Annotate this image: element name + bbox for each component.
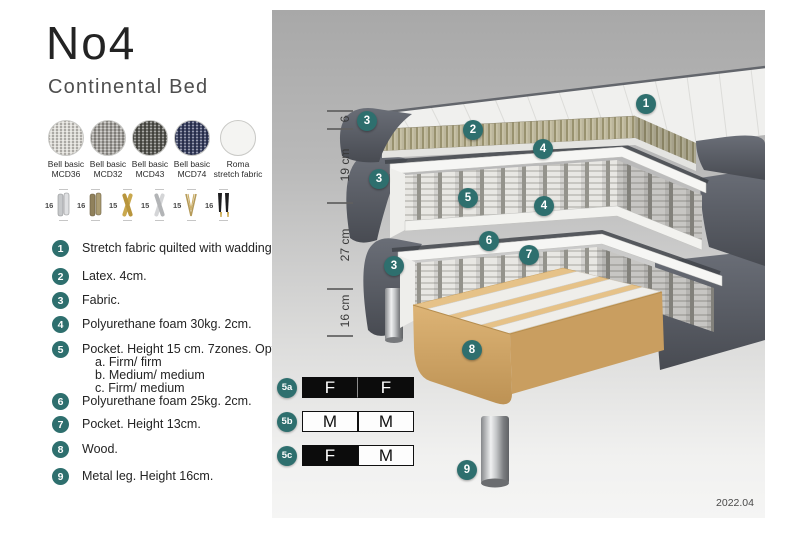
legend-number-badge: 3 bbox=[52, 292, 69, 309]
callout-marker: 5 bbox=[458, 188, 478, 208]
legend-text: Polyurethane foam 30kg. 2cm. bbox=[82, 316, 252, 332]
legend-text: Pocket. Height 13cm. bbox=[82, 416, 201, 432]
callout-marker: 6 bbox=[479, 231, 499, 251]
legend-item: 1 Stretch fabric quilted with wadding. bbox=[52, 240, 275, 257]
firmness-row-5c: 5c F M bbox=[277, 445, 414, 466]
callout-marker: 3 bbox=[357, 111, 377, 131]
middle-frame-post bbox=[390, 168, 405, 238]
version-date: 2022.04 bbox=[716, 497, 754, 509]
legend-text: Stretch fabric quilted with wadding. bbox=[82, 240, 275, 256]
firmness-cell: F bbox=[302, 377, 358, 398]
middle-fabric-side-right bbox=[700, 168, 765, 266]
callout-marker: 3 bbox=[369, 169, 389, 189]
legend-number-badge: 6 bbox=[52, 393, 69, 410]
bed-cutaway-diagram: 6 19 cm 27 cm 16 cm 1 3 2 4 3 5 4 6 7 3 … bbox=[272, 10, 765, 518]
callout-marker: 7 bbox=[519, 245, 539, 265]
firmness-cell: M bbox=[358, 445, 414, 466]
firmness-box: F M bbox=[302, 445, 414, 466]
firmness-cell: M bbox=[358, 411, 414, 432]
legend-text: Wood. bbox=[82, 441, 118, 457]
firmness-box: F F bbox=[302, 377, 414, 398]
legend-number-badge: 7 bbox=[52, 416, 69, 433]
measure-label-leg: 16 cm bbox=[338, 281, 352, 341]
callout-marker: 8 bbox=[462, 340, 482, 360]
callout-marker: 1 bbox=[636, 94, 656, 114]
firmness-cell: F bbox=[302, 445, 358, 466]
firmness-badge: 5c bbox=[277, 446, 297, 466]
pocket-options: a. Firm/ firm b. Medium/ medium c. Firm/… bbox=[95, 356, 205, 396]
legend-item: 7 Pocket. Height 13cm. bbox=[52, 416, 201, 433]
legend-text: Metal leg. Height 16cm. bbox=[82, 468, 213, 484]
legend-item: 4 Polyurethane foam 30kg. 2cm. bbox=[52, 316, 252, 333]
layer-legend: 1 Stretch fabric quilted with wadding. 2… bbox=[52, 0, 277, 533]
callout-marker: 4 bbox=[533, 139, 553, 159]
callout-marker: 9 bbox=[457, 460, 477, 480]
legend-number-badge: 1 bbox=[52, 240, 69, 257]
firmness-row-5a: 5a F F bbox=[277, 377, 414, 398]
measure-label-box: 27 cm bbox=[338, 215, 352, 275]
legend-text: Fabric. bbox=[82, 292, 120, 308]
legend-text: Polyurethane foam 25kg. 2cm. bbox=[82, 393, 252, 409]
legend-item: 3 Fabric. bbox=[52, 292, 120, 309]
legend-item: 6 Polyurethane foam 25kg. 2cm. bbox=[52, 393, 252, 410]
firmness-row-5b: 5b M M bbox=[277, 411, 414, 432]
firmness-badge: 5a bbox=[277, 378, 297, 398]
firmness-box: M M bbox=[302, 411, 414, 432]
legend-item: 8 Wood. bbox=[52, 441, 118, 458]
callout-marker: 4 bbox=[534, 196, 554, 216]
product-sheet: No4 Continental Bed Bell basicMCD36 Bell… bbox=[0, 0, 800, 533]
firmness-cell: F bbox=[358, 377, 414, 398]
legend-item: 2 Latex. 4cm. bbox=[52, 268, 147, 285]
measure-tick bbox=[327, 202, 353, 204]
legend-number-badge: 8 bbox=[52, 441, 69, 458]
legend-number-badge: 2 bbox=[52, 268, 69, 285]
callout-marker: 3 bbox=[384, 256, 404, 276]
front-metal-leg bbox=[481, 416, 509, 488]
firmness-cell: M bbox=[302, 411, 358, 432]
firmness-badge: 5b bbox=[277, 412, 297, 432]
top-fabric-cap-right bbox=[696, 136, 765, 180]
legend-number-badge: 9 bbox=[52, 468, 69, 485]
legend-text: Latex. 4cm. bbox=[82, 268, 147, 284]
legend-number-badge: 4 bbox=[52, 316, 69, 333]
callout-marker: 2 bbox=[463, 120, 483, 140]
legend-number-badge: 5 bbox=[52, 341, 69, 358]
measure-label-mattress: 19 cm bbox=[338, 135, 352, 195]
legend-item: 9 Metal leg. Height 16cm. bbox=[52, 468, 213, 485]
